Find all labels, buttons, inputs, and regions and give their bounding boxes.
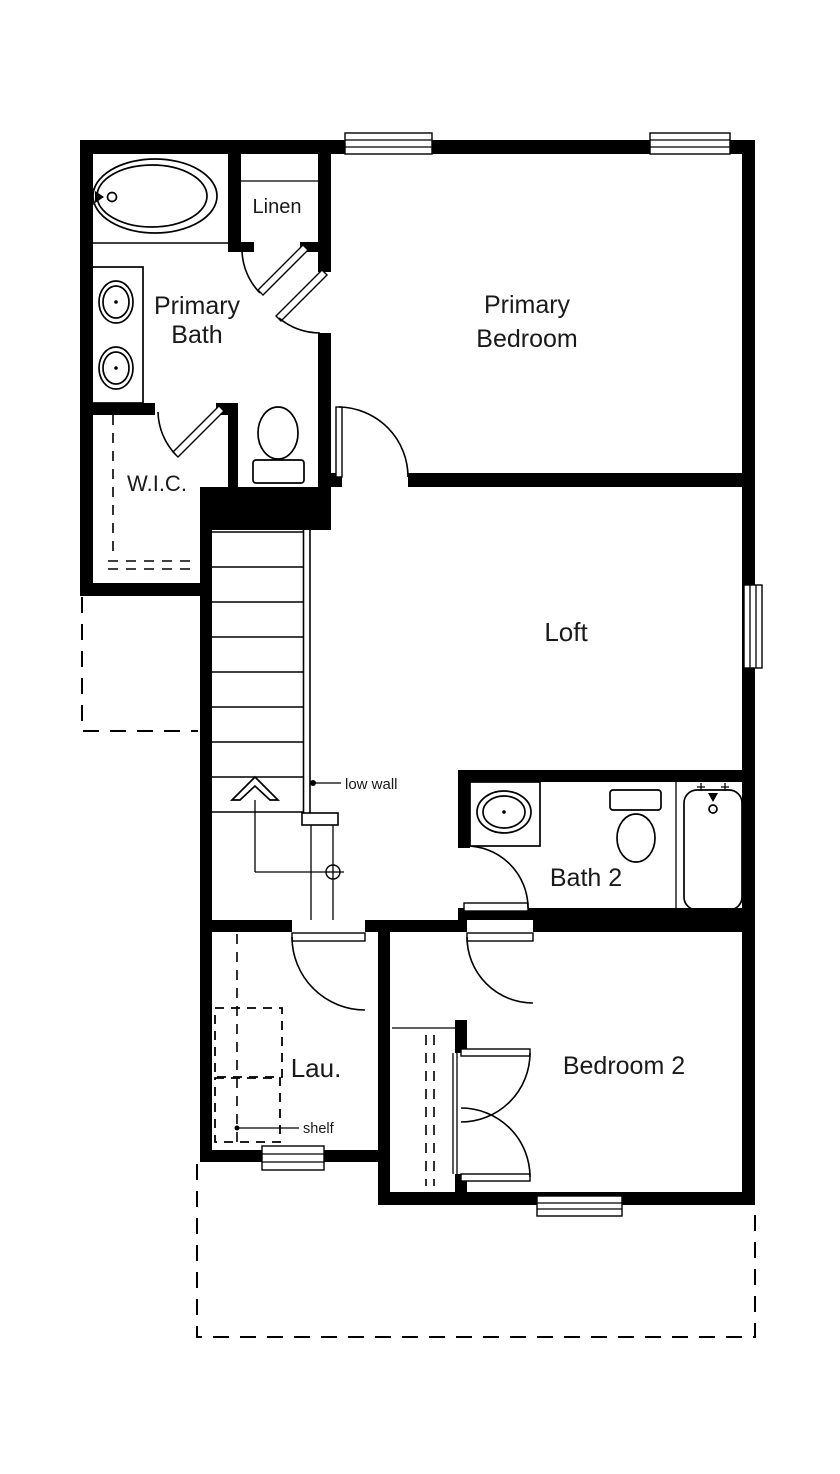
dryer-dashed-icon — [215, 1078, 280, 1142]
annotation-low-wall: low wall — [345, 776, 398, 793]
window-primary-bedroom-2 — [650, 133, 730, 154]
window-primary-bedroom-1 — [345, 133, 432, 154]
wall-toilet-alcove — [228, 403, 238, 490]
low-wall-leader — [310, 780, 341, 786]
room-label-primary-bath-line1: Primary — [154, 292, 241, 320]
wall-laundry-top — [200, 920, 292, 932]
wall-bath2-top — [458, 770, 742, 782]
floor-plan: Linen Primary Bath Primary Bedroom W.I.C… — [0, 0, 840, 1474]
wall-right — [742, 140, 755, 1205]
wall-bath2-left — [458, 770, 470, 848]
bath2-tub-faucet-icon — [697, 783, 729, 813]
annotation-shelf: shelf — [303, 1121, 335, 1137]
roof-outline-left — [82, 597, 198, 731]
bedroom2-closet-doors — [453, 1049, 530, 1181]
roof-outline-dashed — [82, 597, 755, 1337]
wall-stair-landing — [200, 487, 331, 530]
bedroom2-closet — [392, 1028, 455, 1186]
room-label-loft: Loft — [544, 617, 588, 647]
wall-laundry-top-stub — [365, 920, 390, 932]
window-bedroom2 — [537, 1196, 622, 1216]
room-label-bath2: Bath 2 — [550, 864, 622, 892]
window-loft — [744, 585, 762, 668]
bath2-tub-icon — [684, 783, 742, 910]
wall-stair-left — [200, 487, 212, 1162]
room-label-wic: W.I.C. — [127, 471, 187, 496]
primary-bath-door — [276, 270, 327, 333]
bath2-toilet-icon — [610, 790, 661, 862]
room-label-bedroom2: Bedroom 2 — [563, 1052, 685, 1080]
wall-closet-back — [378, 920, 390, 1205]
stair-low-wall — [302, 530, 338, 920]
wall-wic-bottom — [80, 583, 205, 596]
wall-linen-left — [228, 154, 241, 246]
room-label-linen: Linen — [253, 196, 302, 218]
bath2-door — [464, 846, 528, 911]
room-label-primary-bedroom-line1: Primary — [484, 291, 571, 319]
washer-dashed-icon — [215, 1008, 282, 1077]
room-label-primary-bath-line2: Bath — [171, 321, 222, 349]
wall-bedroom-left-upper — [318, 154, 331, 272]
floor-plan-drawing: Linen Primary Bath Primary Bedroom W.I.C… — [0, 0, 840, 1474]
laundry-door — [292, 933, 365, 1010]
closet-rod-dashed — [426, 1035, 434, 1186]
stair-up-arrow-icon — [232, 777, 344, 879]
window-laundry — [262, 1146, 324, 1170]
wall-bedroom-bottom — [408, 473, 742, 487]
wall-bedroom2-top-right — [533, 920, 755, 932]
bedroom2-door — [467, 933, 533, 1003]
shelf-leader — [235, 1126, 300, 1131]
room-label-primary-bedroom-line2: Bedroom — [476, 325, 577, 353]
stairs — [212, 530, 344, 920]
bathtub-icon — [86, 159, 217, 233]
stair-treads — [212, 532, 303, 812]
primary-bedroom-door — [336, 407, 408, 477]
double-vanity-icon — [92, 267, 143, 403]
primary-toilet-icon — [253, 407, 304, 483]
bath2-vanity-icon — [470, 782, 540, 846]
room-label-laundry: Lau. — [291, 1053, 342, 1083]
wall-linen-bottom-left — [228, 242, 254, 252]
linen-door — [242, 245, 308, 295]
laundry-fixtures — [215, 934, 282, 1148]
roof-outline-bottom — [197, 1164, 755, 1337]
doors — [158, 245, 533, 1181]
wall-bedroom2-top-left — [378, 920, 467, 932]
wall-closet-front-top — [455, 1020, 467, 1053]
wall-wic-top-left — [93, 403, 155, 415]
wic-door — [158, 406, 224, 457]
wall-bedroom-left-lower — [318, 333, 331, 487]
